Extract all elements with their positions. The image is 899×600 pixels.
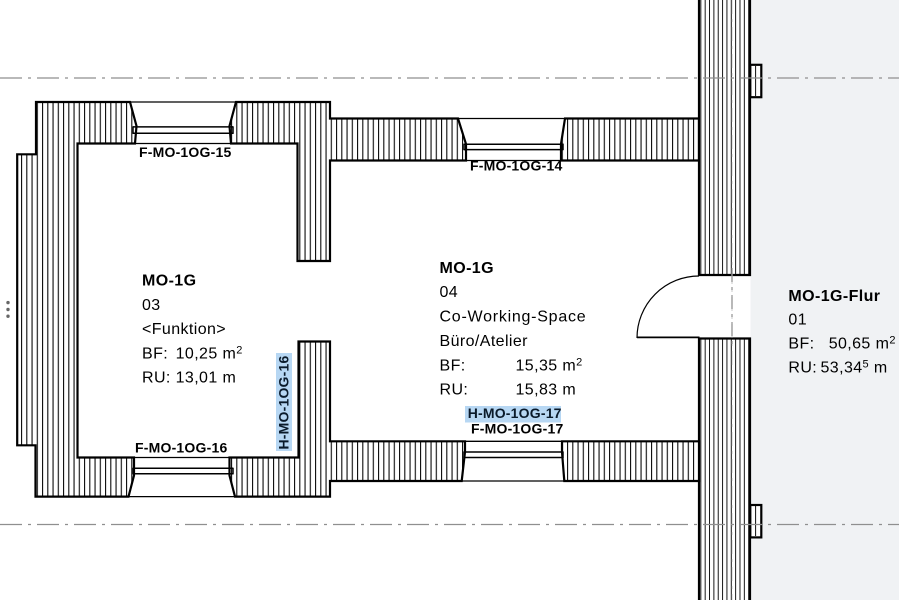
svg-text:BF:50,65 m2: BF:50,65 m2 <box>788 335 895 353</box>
svg-text:MO-1G: MO-1G <box>142 273 196 290</box>
svg-text:04: 04 <box>440 284 459 301</box>
svg-text:03: 03 <box>142 297 161 314</box>
svg-text:F-MO-1OG-17: F-MO-1OG-17 <box>471 420 563 436</box>
svg-text:F-MO-1OG-15: F-MO-1OG-15 <box>139 144 231 160</box>
svg-text:BF:10,25 m2: BF:10,25 m2 <box>142 344 243 362</box>
svg-text:<Funktion>: <Funktion> <box>142 321 226 338</box>
svg-text:MO-1G: MO-1G <box>440 260 494 277</box>
svg-text:RU:53,345 m: RU:53,345 m <box>788 358 887 376</box>
svg-text:F-MO-1OG-14: F-MO-1OG-14 <box>470 158 562 174</box>
svg-text:RU:13,01 m: RU:13,01 m <box>142 370 236 387</box>
svg-text:Co-Working-Space: Co-Working-Space <box>440 309 587 326</box>
svg-text:H-MO-1OG-17: H-MO-1OG-17 <box>468 405 562 421</box>
svg-text:MO-1G-Flur: MO-1G-Flur <box>788 288 880 305</box>
svg-text:Büro/Atelier: Büro/Atelier <box>440 333 529 350</box>
svg-text:01: 01 <box>788 312 807 329</box>
svg-text:H-MO-1OG-16: H-MO-1OG-16 <box>276 356 292 450</box>
svg-text:F-MO-1OG-16: F-MO-1OG-16 <box>135 440 227 456</box>
